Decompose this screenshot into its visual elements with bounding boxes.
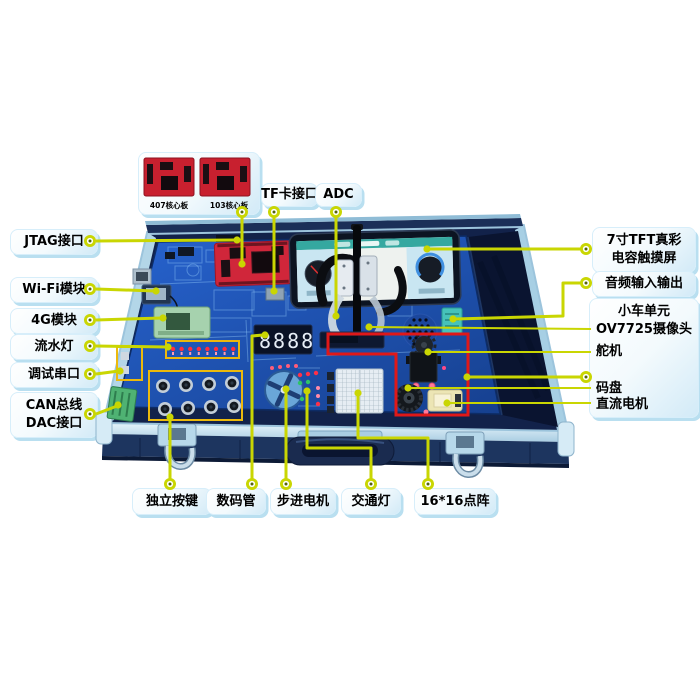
- label-wifi-text: Wi-Fi模块: [22, 281, 86, 299]
- label-traffic-text: 交通灯: [351, 493, 390, 511]
- label-camera: OV7725摄像头: [596, 321, 692, 339]
- handle: [286, 431, 394, 465]
- label-debug-uart-text: 调试串口: [28, 366, 80, 384]
- label-can-text: CAN总线: [26, 397, 82, 415]
- core-boards-panel: 407核心板 103核心板: [138, 152, 260, 215]
- segment-display-value: 8888: [259, 329, 315, 353]
- label-stepper: 步进电机: [270, 488, 336, 515]
- diagram-stage: 407核心板 103核心板 TF卡接口 ADC JTAG接口 Wi-Fi模块 4…: [0, 0, 700, 700]
- audio-module: [442, 308, 462, 334]
- can-connector: [107, 386, 137, 421]
- label-tft-line1: 7寸TFT真彩: [607, 232, 682, 250]
- stepper-knob: [260, 364, 308, 414]
- dot-matrix-module: [327, 369, 383, 413]
- label-servo: 舵机: [596, 343, 622, 361]
- encoder-disc: [395, 384, 429, 415]
- dc-motor: [428, 390, 462, 411]
- corner-cap-right: [558, 422, 574, 456]
- label-tft-line2: 电容触摸屏: [611, 250, 676, 268]
- label-traffic: 交通灯: [341, 488, 401, 515]
- core-board-407-label: 407核心板: [139, 201, 199, 211]
- label-audio-text: 音频输入输出: [605, 275, 683, 293]
- label-adc-text: ADC: [323, 186, 353, 204]
- label-dc-motor: 直流电机: [596, 396, 648, 414]
- label-segment-text: 数码管: [216, 493, 255, 511]
- label-wifi: Wi-Fi模块: [10, 277, 98, 303]
- label-jtag-text: JTAG接口: [24, 233, 83, 251]
- label-keys: 独立按键: [132, 488, 212, 515]
- case-front-lip: [103, 424, 568, 442]
- arm-base: [320, 332, 384, 348]
- segment-display: 8888: [254, 325, 315, 354]
- debug-uart-area: [117, 347, 142, 380]
- label-dot-matrix-text: 16*16点阵: [421, 493, 490, 511]
- usb-port: [133, 269, 151, 284]
- label-can-dac: CAN总线 DAC接口: [10, 392, 98, 438]
- callout-lines: [96, 215, 591, 481]
- camera-arm: [320, 224, 403, 348]
- key-buttons: [149, 371, 242, 420]
- 4g-module: [154, 307, 210, 338]
- label-4g-text: 4G模块: [31, 312, 77, 330]
- flow-led-row: [166, 341, 239, 358]
- latch-right: [446, 432, 484, 475]
- label-tf-card: TF卡接口: [261, 183, 318, 207]
- label-flow-led-text: 流水灯: [34, 338, 73, 356]
- core-board-103-label: 103核心板: [199, 201, 259, 211]
- pcb-silkscreen: [150, 247, 460, 362]
- label-segment: 数码管: [206, 488, 266, 515]
- main-pcb: 8888: [107, 224, 500, 422]
- label-flow-led: 流水灯: [10, 334, 98, 360]
- label-car-unit-group: 小车单元 OV7725摄像头 舵机 码盘 直流电机: [589, 298, 699, 418]
- label-debug-uart: 调试串口: [10, 362, 98, 388]
- label-keys-text: 独立按键: [146, 493, 198, 511]
- case-front-body: [102, 434, 569, 464]
- latch-left: [158, 424, 196, 467]
- label-adc: ADC: [315, 183, 362, 207]
- label-dac-text: DAC接口: [26, 415, 82, 433]
- label-tf-card-text: TF卡接口: [261, 186, 318, 204]
- callout-ring-dots: [84, 206, 592, 490]
- label-dot-matrix: 16*16点阵: [414, 488, 496, 515]
- label-car-unit: 小车单元: [590, 303, 698, 321]
- camera-pole: [353, 225, 361, 340]
- servo-motor: [406, 334, 446, 389]
- tft-screen: [289, 230, 461, 309]
- traffic-light-leds: [298, 368, 320, 406]
- foam-compartment: [468, 231, 558, 427]
- label-tft: 7寸TFT真彩 电容触摸屏: [592, 227, 696, 273]
- jtag-connector: [165, 235, 240, 259]
- core-board-mounted: [214, 241, 291, 287]
- callout-endpoint-dots: [114, 236, 470, 420]
- tf-card-slot: [266, 288, 284, 300]
- label-encoder: 码盘: [596, 380, 622, 398]
- car-unit-highlight-box: [328, 334, 468, 415]
- label-stepper-text: 步进电机: [277, 493, 329, 511]
- label-jtag: JTAG接口: [10, 229, 98, 255]
- case-back-edge: [146, 218, 523, 233]
- label-4g: 4G模块: [10, 308, 98, 334]
- label-audio: 音频输入输出: [592, 271, 696, 297]
- corner-cap-left: [96, 412, 112, 444]
- wifi-module: [142, 285, 177, 322]
- carrying-case: [96, 214, 574, 468]
- speaker: [403, 314, 437, 348]
